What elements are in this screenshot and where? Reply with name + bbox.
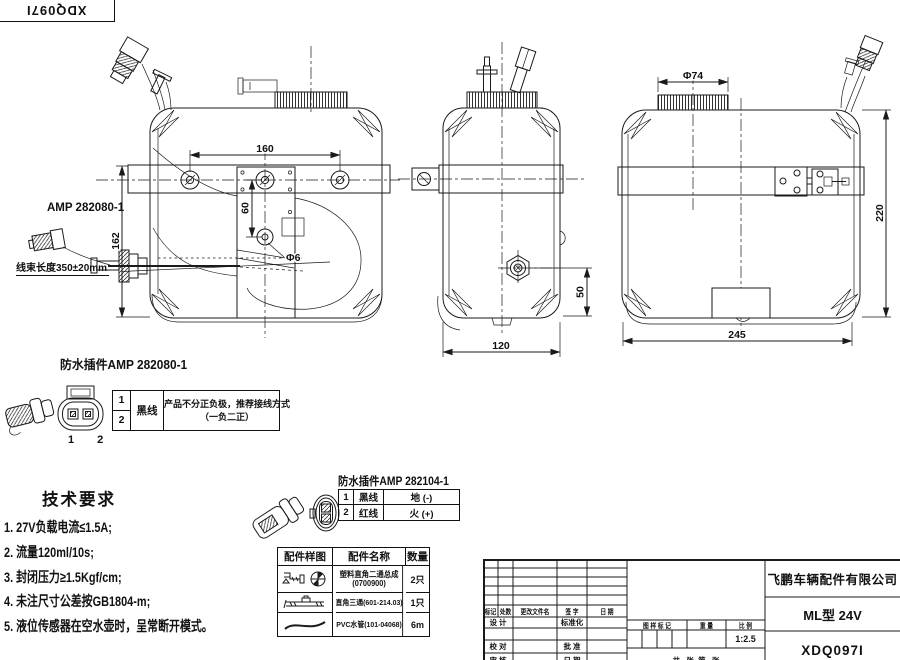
band-latch <box>775 167 849 196</box>
spout-nozzle <box>508 47 536 93</box>
level-sensor <box>91 250 303 282</box>
standardize-label: 标准化 <box>557 617 587 628</box>
wire-connector <box>106 37 148 86</box>
connector2-title: 防水插件AMP 282104-1 <box>338 473 449 489</box>
rev-col-mark: 标记 <box>484 605 497 617</box>
front-view: 160 60 Φ6 162 <box>28 37 400 338</box>
rev-col-file: 更改文件名 <box>516 605 553 617</box>
part-name: PVC水管(101-04068) <box>336 613 403 636</box>
pin-number: 2 <box>339 505 354 520</box>
dim-50: 50 <box>575 286 587 298</box>
part-name: 直角三通(601-214.03) <box>336 593 403 613</box>
pole-label: 地 (-) <box>384 490 459 505</box>
column-header: 配件名称 <box>333 548 406 566</box>
mounting-band <box>128 165 390 193</box>
check-label: 校 对 <box>483 640 513 653</box>
dim-60: 60 <box>240 202 252 214</box>
pole-label: 火 (+) <box>384 505 459 520</box>
part-name-line1: 塑料直角二通总成 <box>340 570 399 580</box>
part-qty: 2只 <box>406 566 429 593</box>
drawing-number: XDQ097I <box>765 631 900 660</box>
column-header: 数量 <box>406 548 429 566</box>
connector1-table: 1 2 黑线 产品不分正负极，推荐接线方式 （一负二正） <box>112 390 280 431</box>
side-view: 50 120 <box>398 42 592 357</box>
drawing-mark-header: 图 样 标 记 <box>632 620 683 630</box>
filler-cap <box>658 95 728 110</box>
amp-connector-drawing <box>28 229 66 254</box>
part-sample-tube-icon <box>278 613 333 636</box>
part-qty: 1只 <box>406 593 429 613</box>
pump-plate <box>237 167 295 318</box>
filler-cap <box>275 92 347 108</box>
wire-color: 黑线 <box>131 391 164 430</box>
weight-header: 重 量 <box>690 620 723 630</box>
tech-item: 5. 液位传感器在空水壶时，呈常断开模式。 <box>4 614 230 639</box>
dim-220: 220 <box>874 204 886 222</box>
dim-162: 162 <box>110 232 122 250</box>
part-sample-elbow-icon <box>278 566 333 593</box>
column-header: 配件样图 <box>278 548 333 566</box>
title-block: 标记 处数 更改文件名 签 字 日 期 设 计 标准化 校 对 批 准 审 核 … <box>483 559 900 660</box>
harness-length-note: 线束长度350±20mm <box>16 259 109 276</box>
dim-245: 245 <box>728 329 746 341</box>
connector1-pin-labels: 1 2 <box>68 434 113 446</box>
part-qty: 6m <box>406 613 429 636</box>
dim-cap-74: Φ74 <box>683 70 703 82</box>
tech-item: 4. 未注尺寸公差按GB1804-m; <box>4 589 230 614</box>
dim-120: 120 <box>492 340 510 352</box>
approve-label: 批 准 <box>557 640 587 653</box>
scale-header: 比 例 <box>729 620 762 630</box>
part-name-line2: (0700900) <box>352 579 386 589</box>
tech-item: 3. 封闭压力≥1.5Kgf/cm; <box>4 565 230 590</box>
connector1-drawing <box>3 386 103 436</box>
dim-160: 160 <box>256 143 274 155</box>
part-sample-tee-icon <box>278 593 333 613</box>
drawing-number-box: XDQ097I <box>0 0 115 22</box>
rev-col-count: 处数 <box>499 605 512 617</box>
wiring-note-line2: （一负二正） <box>200 411 254 424</box>
sheet-note: 共 张 第 张 <box>627 653 765 660</box>
dim-hole: Φ6 <box>286 252 301 264</box>
tech-item: 1. 27V负载电流≤1.5A; <box>4 515 230 540</box>
design-label: 设 计 <box>483 617 513 628</box>
model-label: ML型 24V <box>765 597 900 631</box>
amp-connector-label: AMP 282080-1 <box>47 202 124 214</box>
engineering-drawing-sheet: 160 60 Φ6 162 <box>0 0 900 660</box>
wiring-note: 产品不分正负极，推荐接线方式 （一负二正） <box>164 391 290 430</box>
rev-col-sign: 签 字 <box>559 605 585 617</box>
wire-connector <box>854 36 883 72</box>
pin-number: 2 <box>113 411 131 431</box>
rear-view: Φ74 220 245 <box>618 36 891 346</box>
wire-color: 黑线 <box>354 490 384 505</box>
company-name: 飞鹏车辆配件有限公司 <box>765 559 900 597</box>
pin-number: 1 <box>113 391 131 411</box>
tech-requirements-title: 技术要求 <box>42 486 294 510</box>
wire-color: 红线 <box>354 505 384 520</box>
audit-label: 审 核 <box>483 653 513 660</box>
filler-cap <box>467 92 537 108</box>
rev-col-date: 日 期 <box>590 605 624 617</box>
part-name: 塑料直角二通总成 (0700900) <box>336 566 403 593</box>
technical-requirements: 技术要求 1. 27V负载电流≤1.5A; 2. 流量120ml/10s; 3.… <box>4 486 294 639</box>
tech-item: 2. 流量120ml/10s; <box>4 540 230 565</box>
pin-number: 1 <box>339 490 354 505</box>
parts-table: 配件样图 配件名称 数量 塑料直角二通总成 (0700900) 2只 直角三通(… <box>277 547 430 637</box>
drawing-number-rotated: XDQ097I <box>26 3 86 18</box>
wiring-note-line1: 产品不分正负极，推荐接线方式 <box>164 398 290 411</box>
date-label: 日 期 <box>557 653 587 660</box>
connector2-table: 1 黑线 地 (-) 2 红线 火 (+) <box>338 489 460 521</box>
connector1-title: 防水插件AMP 282080-1 <box>60 354 187 373</box>
scale-value: 1:2.5 <box>726 630 765 648</box>
